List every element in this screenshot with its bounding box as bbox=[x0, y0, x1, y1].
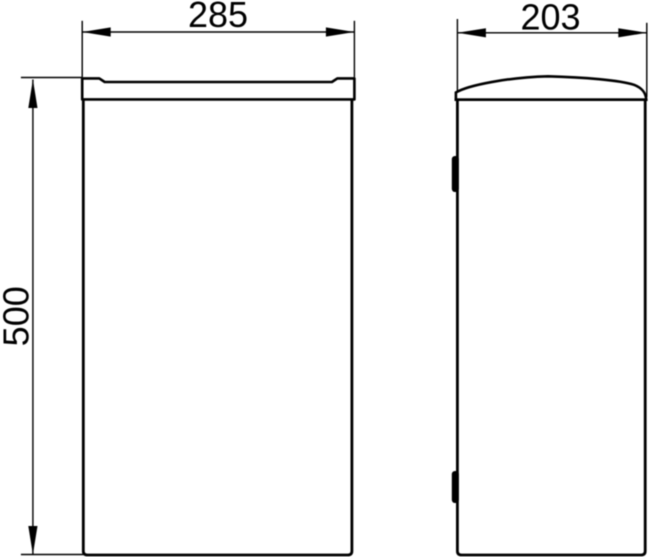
svg-text:285: 285 bbox=[188, 0, 248, 35]
svg-text:203: 203 bbox=[520, 0, 580, 37]
svg-text:500: 500 bbox=[0, 286, 37, 346]
